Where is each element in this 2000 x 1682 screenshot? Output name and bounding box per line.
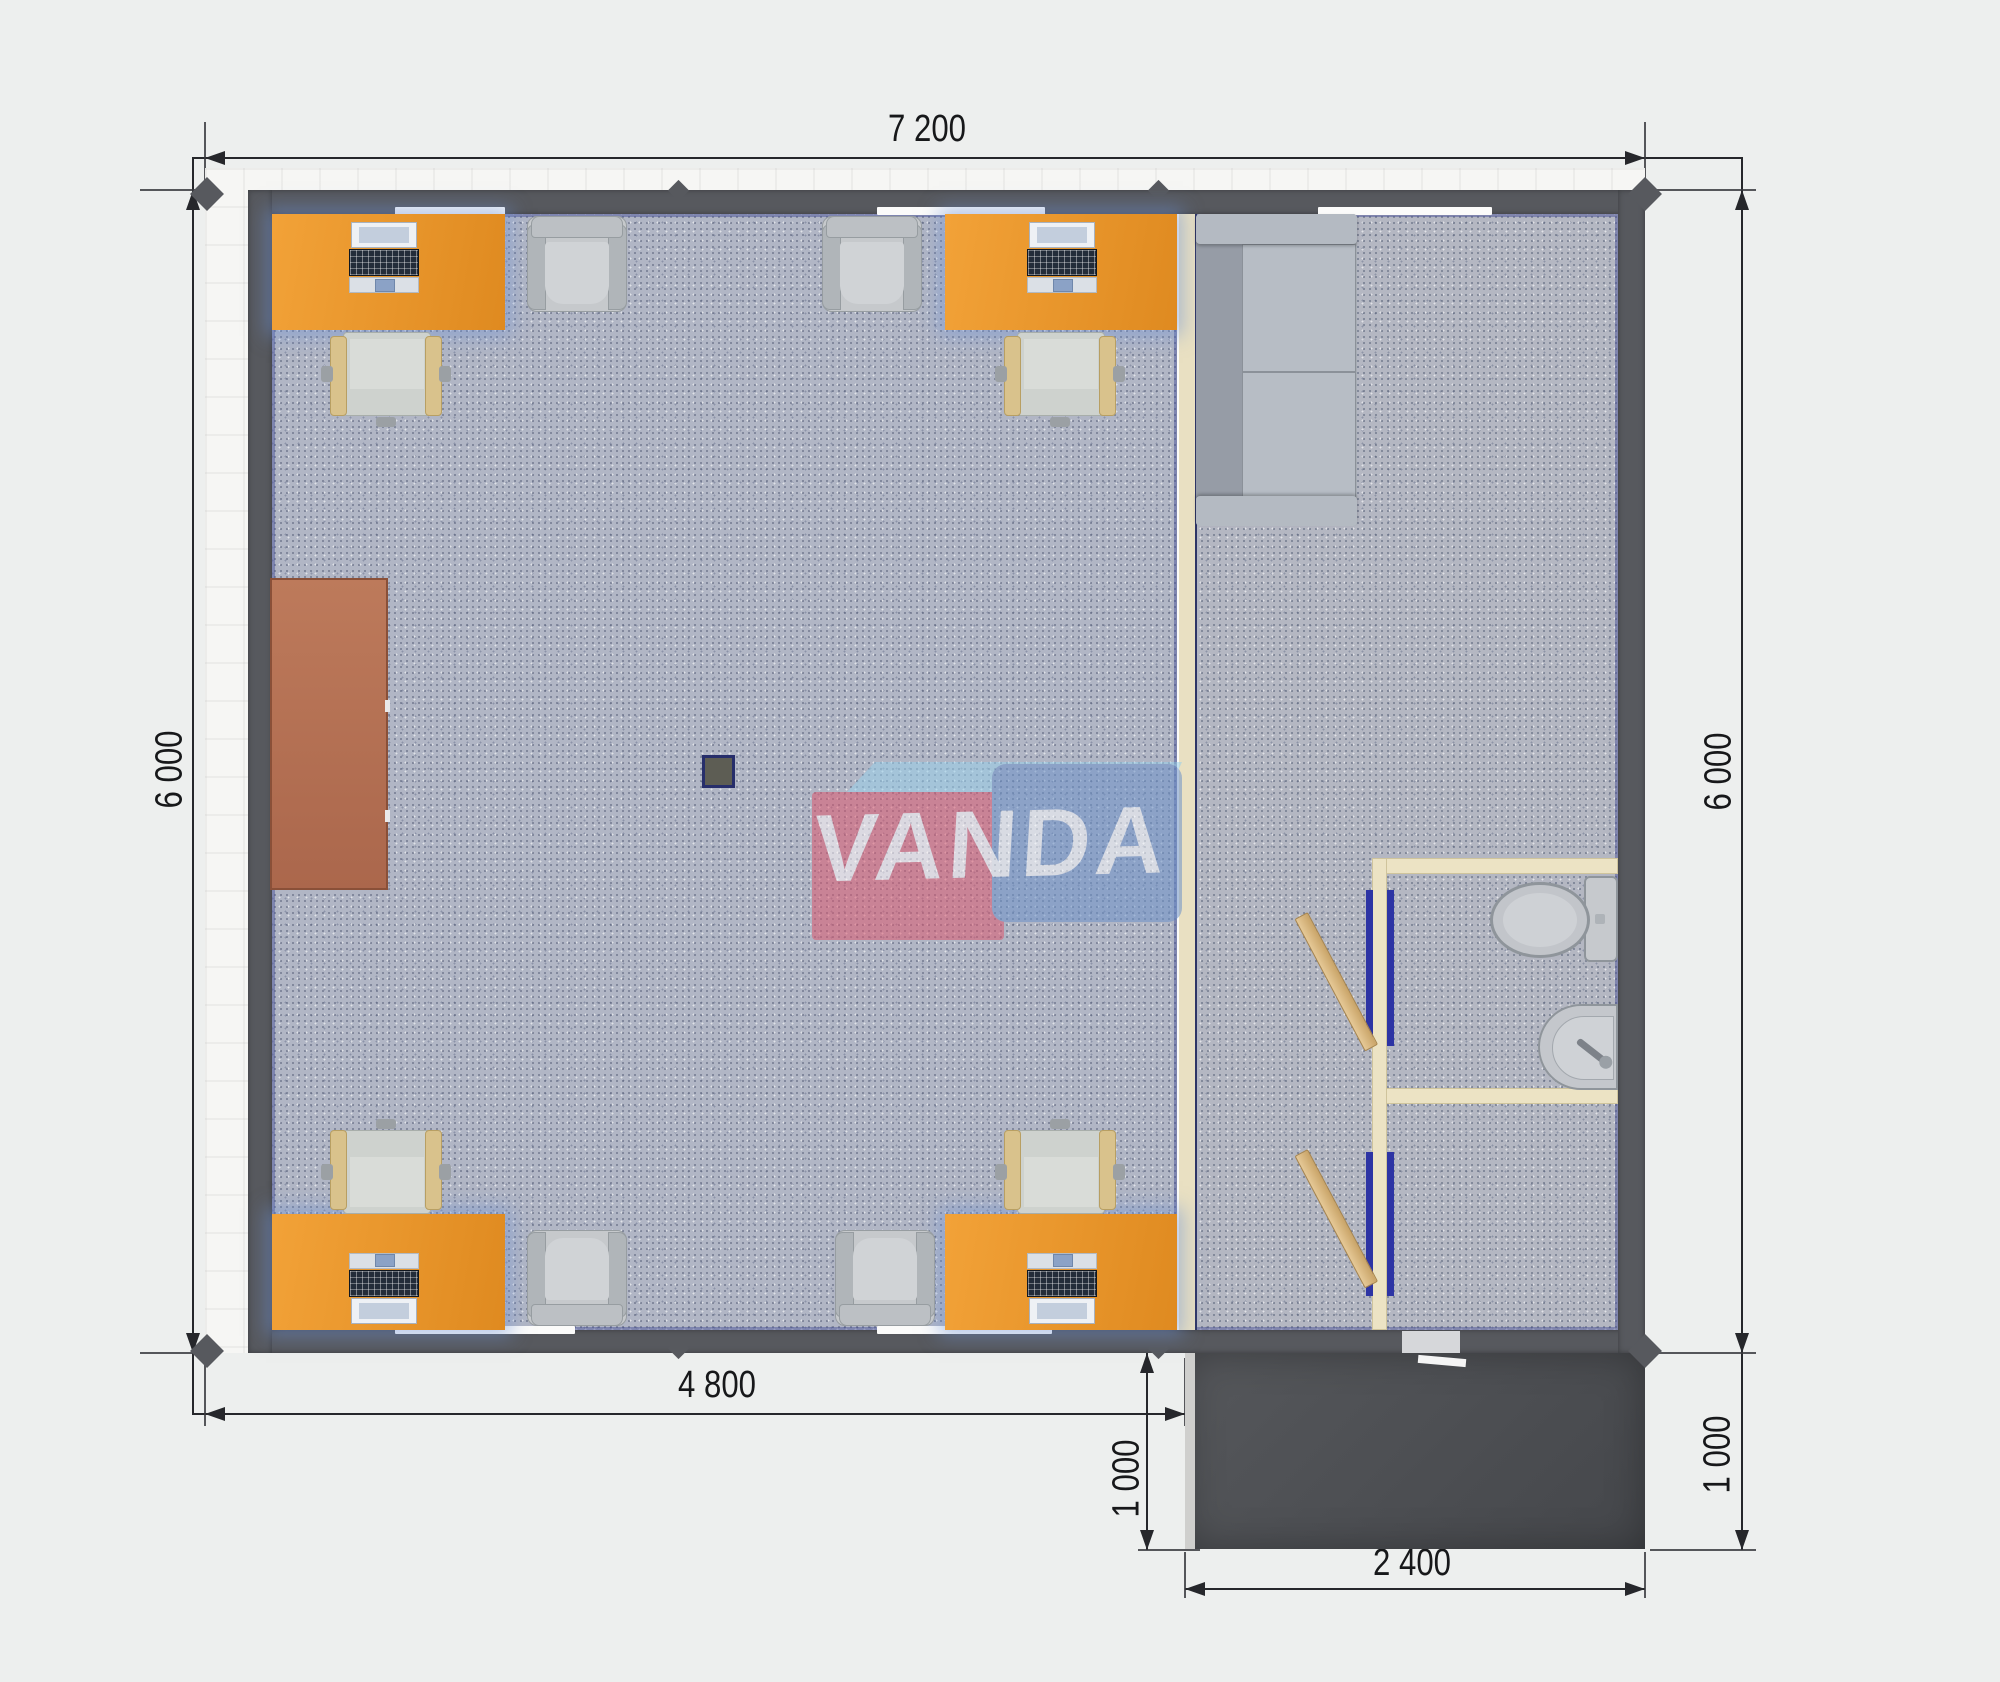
armchair <box>822 216 922 312</box>
door-frame <box>1387 1152 1394 1296</box>
door-frame <box>1366 890 1373 1046</box>
cabinet <box>270 578 388 890</box>
sink <box>1538 1004 1618 1090</box>
dim-arrow <box>1625 151 1645 165</box>
laptop-icon <box>348 1254 420 1324</box>
laptop-icon <box>348 222 420 292</box>
dim-label-porch-right: 1 000 <box>1697 1373 1740 1537</box>
wall-left <box>248 190 272 1353</box>
armchair <box>835 1230 935 1326</box>
entrance-door-opening <box>1402 1331 1460 1353</box>
dim-arrow <box>205 1407 225 1421</box>
dim-arrow <box>205 151 225 165</box>
wall-right <box>1618 190 1645 1353</box>
dim-arrow <box>1165 1407 1185 1421</box>
laptop-icon <box>1026 222 1098 292</box>
dim-arrow <box>1735 1333 1749 1353</box>
desk-chair <box>330 332 442 418</box>
armchair <box>527 1230 627 1326</box>
door-frame <box>1387 890 1394 1046</box>
vanda-watermark: VANDA <box>800 742 1182 940</box>
dim-label-left: 6 000 <box>149 688 192 852</box>
dim-label-top: 7 200 <box>845 108 1009 151</box>
entrance-door-leaf <box>1418 1355 1467 1367</box>
entrance-porch <box>1185 1353 1645 1549</box>
dim-arrow <box>1625 1582 1645 1596</box>
sofa <box>1196 214 1357 526</box>
dim-label-right: 6 000 <box>1698 690 1741 854</box>
desk-chair <box>1004 1128 1116 1214</box>
dim-line-bottom <box>192 1413 1185 1415</box>
floor-plan: 7 200 6 000 6 000 4 800 1 000 2 400 1 00… <box>0 0 2000 1682</box>
dim-label-porch-left: 1 000 <box>1106 1397 1149 1561</box>
wc-wall-mid <box>1372 1088 1618 1104</box>
wc-wall-left <box>1372 858 1387 1330</box>
armchair <box>527 216 627 312</box>
toilet-bowl <box>1490 882 1590 958</box>
wc-wall-top <box>1372 858 1618 874</box>
dim-arrow <box>1140 1353 1154 1373</box>
logo-text: VANDA <box>800 785 1181 905</box>
dim-line-top <box>192 157 1742 159</box>
dim-line-left <box>192 157 194 1415</box>
desk-chair <box>330 1128 442 1214</box>
laptop-icon <box>1026 1254 1098 1324</box>
structural-column <box>702 755 735 788</box>
desk-chair <box>1004 332 1116 418</box>
porch-edge <box>1185 1353 1195 1549</box>
dim-label-bottom: 4 800 <box>635 1364 799 1407</box>
dim-arrow <box>1735 190 1749 210</box>
dim-arrow <box>1185 1582 1205 1596</box>
dim-line-porch-bottom <box>1185 1588 1645 1590</box>
